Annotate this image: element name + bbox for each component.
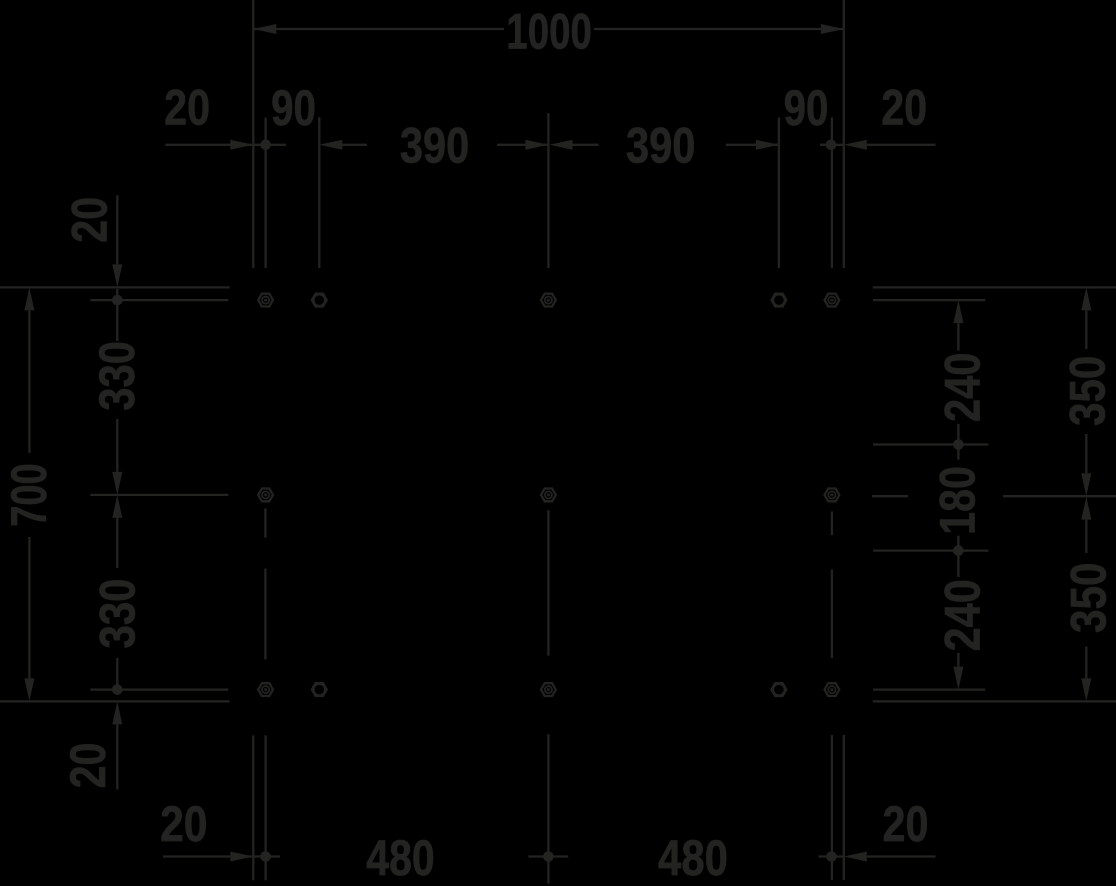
svg-text:20: 20 (60, 743, 116, 789)
svg-text:90: 90 (271, 80, 316, 136)
svg-text:330: 330 (89, 341, 145, 411)
svg-text:390: 390 (400, 118, 469, 174)
svg-text:240: 240 (935, 353, 991, 423)
svg-text:1000: 1000 (506, 4, 592, 60)
svg-text:20: 20 (883, 796, 929, 852)
svg-text:180: 180 (930, 466, 986, 535)
svg-text:20: 20 (62, 197, 118, 243)
svg-text:700: 700 (1, 463, 57, 526)
svg-text:90: 90 (784, 80, 829, 136)
svg-text:240: 240 (934, 579, 990, 651)
svg-text:20: 20 (164, 80, 210, 136)
svg-text:350: 350 (1060, 562, 1116, 633)
svg-text:480: 480 (366, 830, 434, 886)
svg-text:330: 330 (89, 579, 145, 649)
svg-text:20: 20 (881, 80, 927, 136)
svg-text:350: 350 (1060, 356, 1116, 426)
svg-text:20: 20 (160, 796, 207, 852)
svg-text:480: 480 (658, 830, 728, 886)
svg-text:390: 390 (626, 118, 696, 174)
